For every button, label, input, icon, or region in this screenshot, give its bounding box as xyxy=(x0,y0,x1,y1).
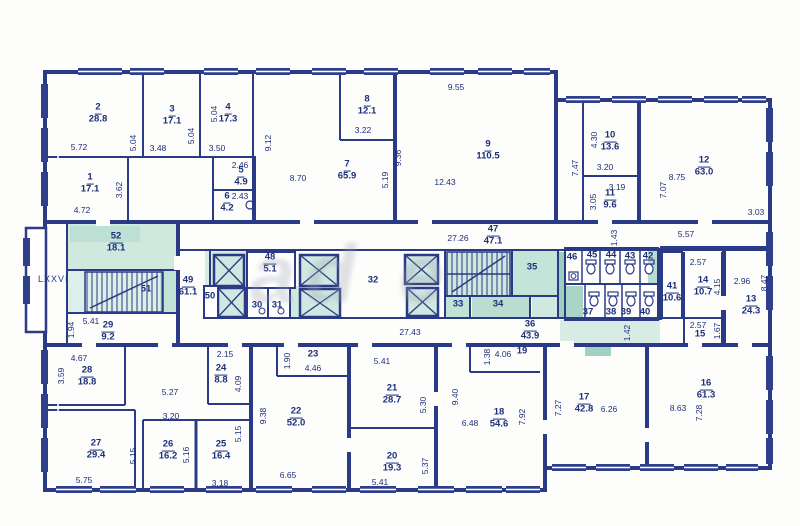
room-label-49: 4961.1 xyxy=(179,276,198,299)
room-label-23: 23 xyxy=(308,350,319,361)
dim-label: 5.72 xyxy=(71,142,88,152)
room-label-2: 228.8 xyxy=(89,103,108,126)
dim-label: 2.96 xyxy=(734,276,751,286)
dim-label: 3.19 xyxy=(609,182,626,192)
dim-label: 5.41 xyxy=(372,477,389,487)
room-label-3: 317.1 xyxy=(163,105,182,128)
dim-label: 8.75 xyxy=(669,172,686,182)
room-label-10: 1013.6 xyxy=(601,131,620,154)
dim-label: 9.38 xyxy=(258,408,268,425)
dim-label: 5.04 xyxy=(186,128,196,145)
dim-label: 5.16 xyxy=(181,447,191,464)
dim-label: 5.41 xyxy=(83,316,100,326)
dim-label: 9.40 xyxy=(450,389,460,406)
room-label-46: 46 xyxy=(567,253,578,264)
dim-label: 5.04 xyxy=(209,106,219,123)
dim-label: 5.41 xyxy=(374,356,391,366)
dim-label: 27.43 xyxy=(399,327,420,337)
room-label-51: 51 xyxy=(141,285,152,296)
dim-label: 6.65 xyxy=(280,470,297,480)
room-label-33: 33 xyxy=(453,300,464,311)
room-label-24: 248.8 xyxy=(214,364,227,387)
room-label-28: 2818.8 xyxy=(78,366,97,389)
dim-label: 12.43 xyxy=(434,177,455,187)
dim-label: 3.20 xyxy=(163,411,180,421)
dim-label: 5.57 xyxy=(678,229,695,239)
section-label: LXXVI xyxy=(38,274,69,284)
room-label-22: 2252.0 xyxy=(287,407,306,430)
dim-label: 3.03 xyxy=(748,207,765,217)
room-label-43: 43 xyxy=(625,252,636,263)
room-label-7: 765.9 xyxy=(338,160,357,183)
room-label-36: 3643.9 xyxy=(521,320,540,343)
dim-label: 3.20 xyxy=(597,162,614,172)
dim-label: 7.47 xyxy=(570,160,580,177)
room-label-30: 30 xyxy=(252,301,263,312)
dim-label: 5.37 xyxy=(420,458,430,475)
dim-label: 3.48 xyxy=(150,143,167,153)
dim-label: 9.55 xyxy=(448,82,465,92)
room-label-4: 417.3 xyxy=(219,103,238,126)
room-label-50: 50 xyxy=(205,292,216,303)
dim-label: 4.72 xyxy=(74,205,91,215)
room-label-17: 1742.8 xyxy=(575,393,594,416)
dim-label: 6.48 xyxy=(462,418,479,428)
room-label-12: 1263.0 xyxy=(695,156,714,179)
room-label-20: 2019.3 xyxy=(383,452,402,475)
dim-label: 27.26 xyxy=(447,233,468,243)
room-label-11: 119.6 xyxy=(603,189,616,212)
room-label-44: 44 xyxy=(606,251,617,262)
dim-label: 2.43 xyxy=(232,191,249,201)
dim-label: 7.27 xyxy=(553,400,563,417)
dim-label: 2.15 xyxy=(217,349,234,359)
room-label-13: 1324.3 xyxy=(742,295,761,318)
dim-label: 2.57 xyxy=(690,320,707,330)
dim-label: 5.27 xyxy=(162,387,179,397)
room-label-15: 15 xyxy=(695,330,706,341)
dim-label: 3.50 xyxy=(209,143,226,153)
room-label-19: 19 xyxy=(517,347,528,358)
dim-label: 4.67 xyxy=(71,353,88,363)
room-label-29: 299.2 xyxy=(101,321,114,344)
dim-label: 3.18 xyxy=(212,478,229,488)
room-label-41: 4110.6 xyxy=(663,282,682,305)
room-label-9: 9110.5 xyxy=(476,140,499,163)
dim-label: 4.46 xyxy=(305,363,322,373)
room-label-37: 37 xyxy=(583,308,594,319)
label-layer: 117.1228.8317.1417.354.964.2765.9812.191… xyxy=(0,0,800,526)
room-label-8: 812.1 xyxy=(358,95,377,118)
dim-label: 7.28 xyxy=(694,405,704,422)
dim-label: 4.30 xyxy=(589,132,599,149)
dim-label: 9.36 xyxy=(393,150,403,167)
dim-label: 3.59 xyxy=(56,368,66,385)
room-label-31: 31 xyxy=(272,301,283,312)
dim-label: 6.26 xyxy=(601,404,618,414)
room-label-48: 485.1 xyxy=(263,253,276,276)
room-label-42: 42 xyxy=(643,252,654,263)
floor-plan: 117.1228.8317.1417.354.964.2765.9812.191… xyxy=(0,0,800,526)
room-label-38: 38 xyxy=(606,308,617,319)
dim-label: 5.04 xyxy=(128,135,138,152)
dim-label: 5.75 xyxy=(76,475,93,485)
room-label-40: 40 xyxy=(640,308,651,319)
dim-label: 4.09 xyxy=(233,376,243,393)
dim-label: 5.15 xyxy=(233,426,243,443)
dim-label: 3.62 xyxy=(114,182,124,199)
room-label-25: 2516.4 xyxy=(212,440,231,463)
dim-label: 4.15 xyxy=(712,279,722,296)
room-label-32: 32 xyxy=(368,276,379,287)
dim-label: 7.07 xyxy=(658,182,668,199)
dim-label: 5.15 xyxy=(128,448,138,465)
dim-label: 3.05 xyxy=(588,194,598,211)
room-label-16: 1661.3 xyxy=(697,379,716,402)
room-label-21: 2128.7 xyxy=(383,384,402,407)
dim-label: 3.22 xyxy=(355,125,372,135)
room-label-45: 45 xyxy=(587,251,598,262)
room-label-52: 5218.1 xyxy=(107,232,126,255)
dim-label: 2.46 xyxy=(232,160,249,170)
dim-label: 1.43 xyxy=(609,230,619,247)
dim-label: 2.57 xyxy=(690,257,707,267)
dim-label: 8.70 xyxy=(290,173,307,183)
room-label-34: 34 xyxy=(493,300,504,311)
room-label-35: 35 xyxy=(527,263,538,274)
room-label-27: 2729.4 xyxy=(87,439,106,462)
room-label-14: 1410.7 xyxy=(694,276,713,299)
dim-label: 9.12 xyxy=(263,135,273,152)
dim-label: 5.19 xyxy=(380,172,390,189)
dim-label: 1.90 xyxy=(282,353,292,370)
dim-label: 1.67 xyxy=(712,323,722,340)
dim-label: 8.47 xyxy=(759,275,769,292)
dim-label: 1.38 xyxy=(482,349,492,366)
room-label-47: 4747.1 xyxy=(484,225,503,248)
dim-label: 5.30 xyxy=(418,397,428,414)
room-label-26: 2616.2 xyxy=(159,440,178,463)
dim-label: 4.06 xyxy=(495,349,512,359)
room-label-18: 1854.6 xyxy=(490,408,509,431)
dim-label: 1.94 xyxy=(66,322,76,339)
room-label-39: 39 xyxy=(621,308,632,319)
dim-label: 1.42 xyxy=(622,325,632,342)
room-label-1: 117.1 xyxy=(81,173,100,196)
dim-label: 8.63 xyxy=(670,403,687,413)
dim-label: 7.92 xyxy=(517,409,527,426)
